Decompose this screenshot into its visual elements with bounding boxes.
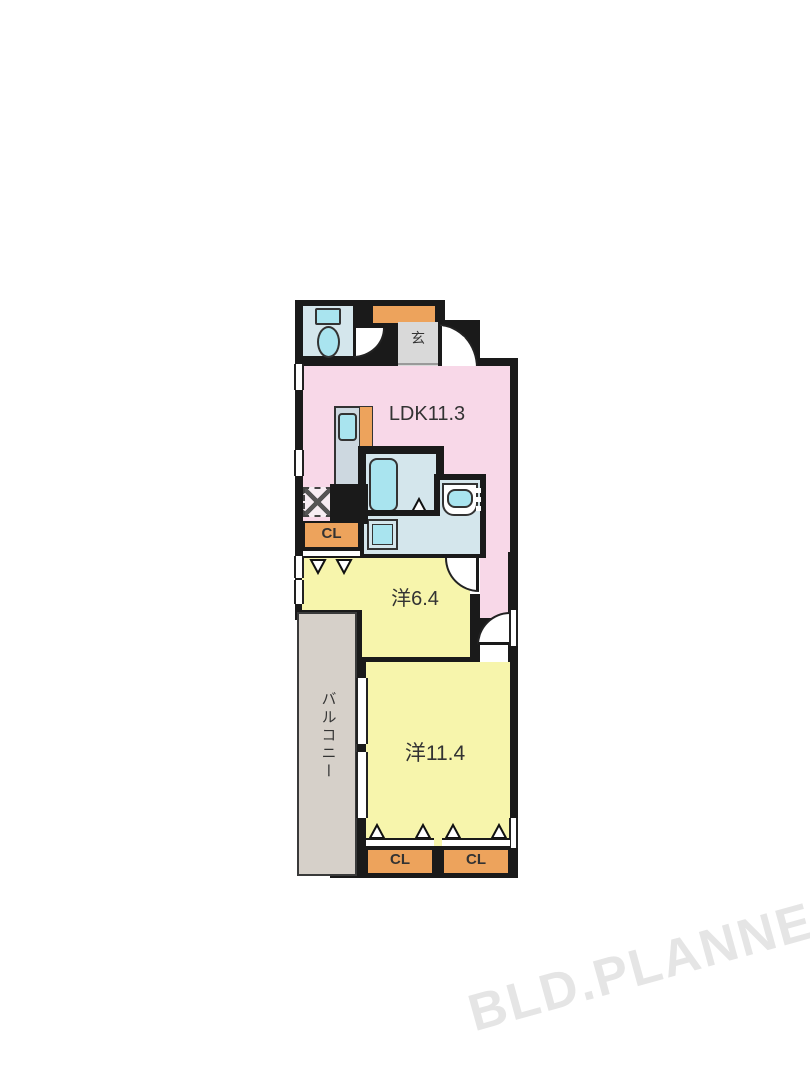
washroom-folding-door-dash-1 [476, 488, 481, 493]
window-left-1 [294, 364, 304, 390]
balcony-label: バルコニー [319, 676, 336, 796]
closet-bottom-left-label: CL [366, 852, 434, 869]
kitchen-sink-icon [338, 413, 357, 441]
pillar-hatch-icon [303, 487, 332, 517]
floorplan-page: 玄 LDK11.3 CL 洋6.4 洋11.4 バルコニー [0, 0, 810, 1080]
room-western-6-4-lower [362, 610, 470, 657]
bathtub-icon [369, 458, 398, 512]
room-ldk-label: LDK11.3 [368, 403, 486, 425]
washbasin-bowl-icon [447, 489, 473, 508]
entrance-label: 玄 [402, 331, 434, 346]
closet-mid-label: CL [303, 526, 360, 543]
closet-left-track [366, 838, 434, 848]
room-western-11-4-label: 洋11.4 [385, 742, 485, 765]
corridor [480, 552, 508, 618]
toilet-bowl-icon [317, 326, 340, 358]
toilet-tank-icon [315, 308, 341, 325]
watermark: BLD.PLANNER [462, 881, 810, 1044]
balcony-window-1 [356, 678, 368, 744]
western-11-4-door-threshold [480, 644, 508, 662]
window-right-2 [509, 818, 518, 848]
window-left-3 [294, 556, 304, 578]
washroom-folding-door-dash-3 [476, 506, 481, 511]
window-right-1 [509, 610, 518, 646]
washroom-folding-door-dash-2 [476, 497, 481, 502]
closet-mid-track [303, 549, 360, 558]
closet-mid-door-markers-icon [306, 558, 358, 575]
room-western-6-4-label: 洋6.4 [370, 588, 460, 610]
balcony-window-2 [356, 752, 368, 818]
washing-machine-pan [372, 524, 393, 545]
entrance-step-line [398, 363, 438, 365]
closet-bottom-right-label: CL [442, 852, 510, 869]
wall-chunk-mid [330, 484, 368, 524]
window-left-2 [294, 450, 304, 476]
window-left-4 [294, 580, 304, 604]
closet-right-track [442, 838, 510, 848]
